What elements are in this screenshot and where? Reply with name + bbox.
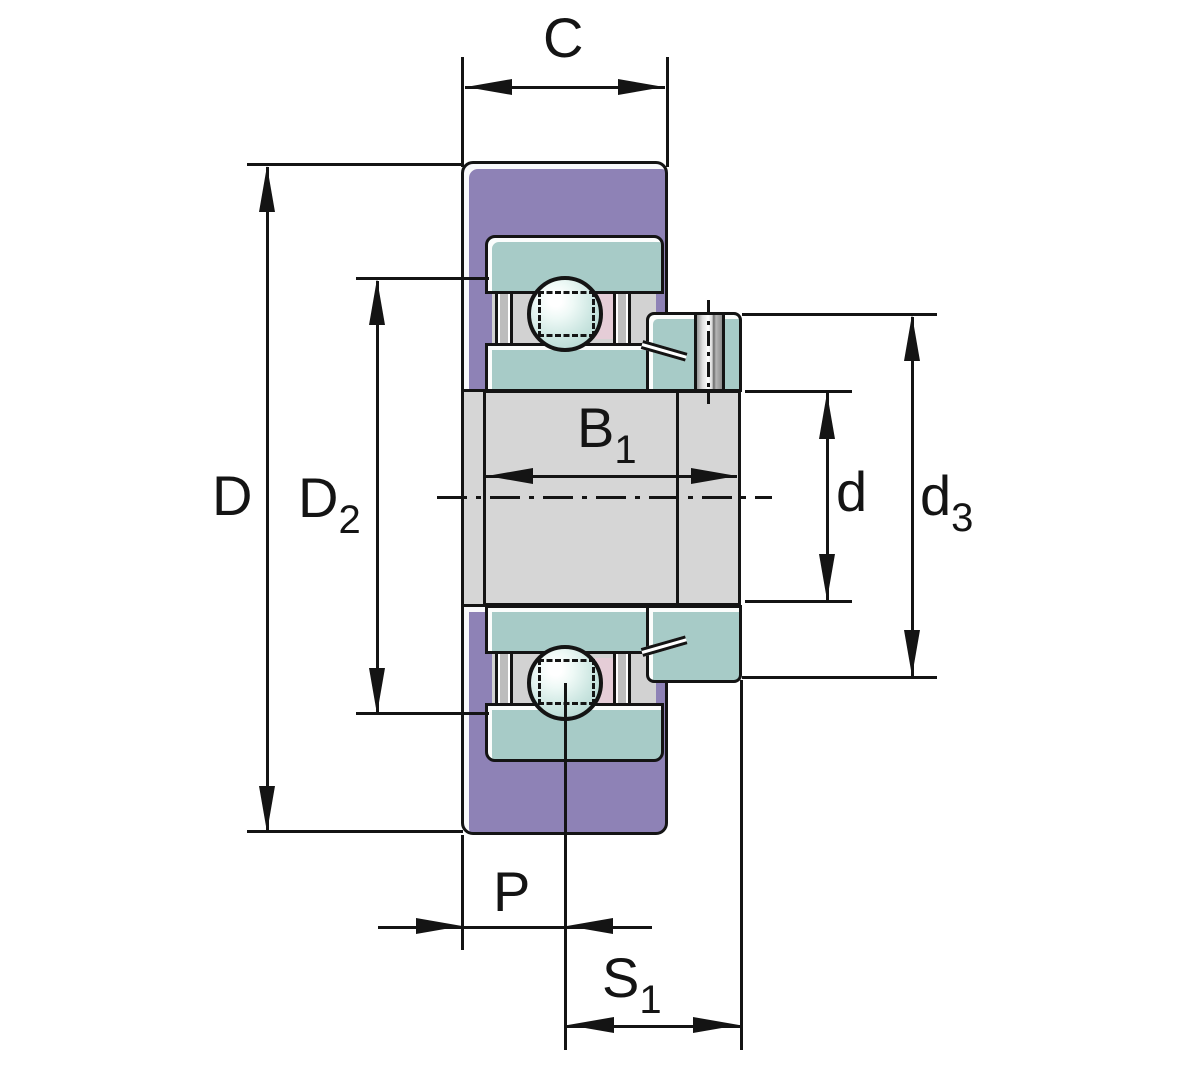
dim-c-extension-left [461, 57, 464, 167]
dim-D-extension-top [247, 163, 463, 166]
dim-label-d3-main: d [920, 468, 951, 524]
cage-pocket-dashed-top [538, 291, 595, 337]
dim-label-D-text: D [212, 468, 252, 524]
dim-label-d-text: d [836, 464, 867, 520]
dim-d-extension-bottom [745, 600, 852, 603]
dim-B1-arrowhead-right [691, 468, 737, 484]
dim-label-c-text: C [543, 10, 583, 66]
dim-d3-line [911, 317, 914, 678]
dim-label-S1: S1 [602, 950, 662, 1020]
dim-d-extension-top [745, 390, 852, 393]
dim-D-arrowhead-top [259, 166, 275, 212]
dim-label-D2-sub: 2 [338, 500, 360, 540]
dim-d3-extension-bottom [742, 676, 937, 679]
dim-label-d: d [836, 464, 867, 520]
dim-D-extension-bottom [247, 830, 463, 833]
dim-label-D: D [212, 468, 252, 524]
dim-label-D2: D2 [298, 470, 361, 540]
dim-P-tail-right [567, 926, 652, 929]
dim-label-B1-sub: 1 [614, 430, 636, 470]
dim-d3-arrowhead-bottom [904, 630, 920, 676]
dim-d-arrowhead-top [819, 393, 835, 439]
dim-label-P: P [493, 864, 530, 920]
dim-B1-arrowhead-left [487, 468, 533, 484]
dim-S1-extension-right [740, 680, 743, 1050]
ball-center-extension-line [564, 683, 567, 1050]
dim-label-S1-main: S [602, 950, 639, 1006]
dim-d-arrowhead-bottom [819, 554, 835, 600]
dim-D-line [266, 167, 269, 831]
dim-c-arrowhead-right [618, 79, 664, 95]
dim-D2-line [376, 281, 379, 713]
dim-label-P-text: P [493, 864, 530, 920]
shaft-centerline [437, 496, 772, 499]
set-screw-centerline [707, 300, 710, 404]
dim-label-D2-main: D [298, 470, 338, 526]
dim-c-arrowhead-left [466, 79, 512, 95]
dim-label-d3-sub: 3 [951, 498, 973, 538]
dim-D-arrowhead-bottom [259, 786, 275, 832]
dim-label-B1-main: B [577, 400, 614, 456]
dim-D2-arrowhead-bottom [369, 668, 385, 714]
dim-P-arrowhead-left [416, 918, 462, 934]
dim-label-B1: B1 [577, 400, 637, 470]
dim-D2-arrowhead-top [369, 279, 385, 325]
dim-label-S1-sub: 1 [639, 980, 661, 1020]
dim-d3-arrowhead-top [904, 315, 920, 361]
dim-label-c: C [543, 10, 583, 66]
dim-label-d3: d3 [920, 468, 973, 538]
bearing-sectional-drawing: C D D2 B1 d d3 P [0, 0, 1200, 1066]
dim-c-extension-right [666, 57, 669, 167]
dim-S1-arrowhead-right [693, 1017, 739, 1033]
dim-P-line [462, 926, 565, 929]
